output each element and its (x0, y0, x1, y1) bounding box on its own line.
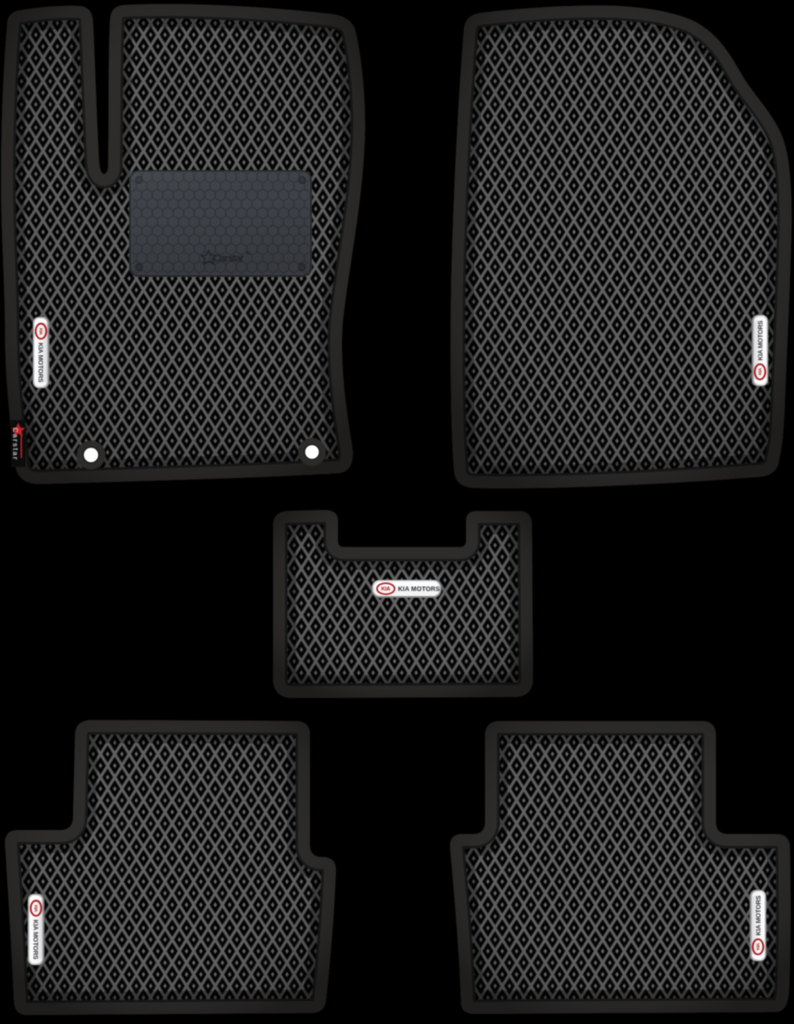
svg-text:Carstar: Carstar (11, 428, 20, 460)
